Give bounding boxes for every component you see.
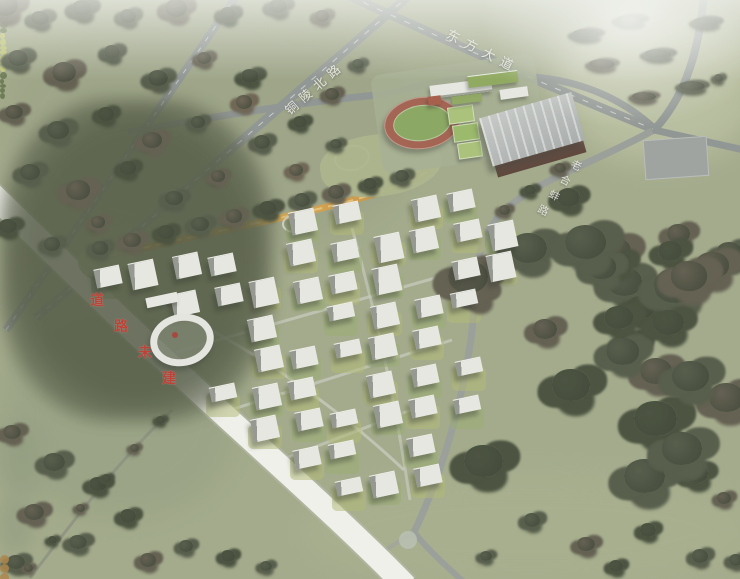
tree-cluster xyxy=(197,52,211,63)
tree-cluster xyxy=(533,319,557,339)
tree-cluster xyxy=(165,0,187,17)
tree-cluster xyxy=(289,164,303,175)
tree-cluster xyxy=(693,17,719,27)
tree-cluster xyxy=(395,170,409,181)
residential-building xyxy=(373,232,404,264)
tree-cluster xyxy=(48,536,57,543)
south-roundabout xyxy=(399,531,417,549)
residential-building xyxy=(172,251,202,279)
tree-cluster xyxy=(220,7,236,20)
tree-cluster xyxy=(640,523,656,536)
tree-cluster xyxy=(142,132,162,148)
site-tree xyxy=(0,28,7,33)
tree-cluster xyxy=(91,216,105,227)
tree-cluster xyxy=(211,170,225,181)
tree-cluster xyxy=(717,492,731,503)
tree-cluster xyxy=(47,121,69,139)
road-label-char: 建 xyxy=(162,368,176,388)
tree-cluster xyxy=(692,549,708,562)
tree-cluster xyxy=(662,432,702,465)
tree-cluster xyxy=(552,369,590,400)
residential-building xyxy=(127,258,158,290)
tree-cluster xyxy=(191,116,205,127)
tree-cluster xyxy=(120,9,136,22)
residential-building xyxy=(293,276,323,304)
tree-cluster xyxy=(624,459,665,493)
tree-cluster xyxy=(352,59,364,69)
tree-cluster xyxy=(679,81,705,91)
road-south-tip xyxy=(414,532,466,579)
tree-cluster xyxy=(130,444,139,451)
site-tree xyxy=(0,33,5,40)
tree-cluster xyxy=(148,70,168,86)
tree-cluster xyxy=(120,509,136,522)
tree-cluster xyxy=(76,504,85,511)
tree-cluster xyxy=(221,550,235,561)
road-label-char: 道 xyxy=(90,290,104,310)
soccer-infield xyxy=(391,101,453,145)
aerial-masterplan-rendering: 铜陵北路 东方大道 老合蚌路 道路未建 xyxy=(0,0,740,579)
tree-cluster xyxy=(328,185,344,198)
tree-cluster xyxy=(524,513,540,526)
tree-cluster xyxy=(260,561,272,571)
school-building-red xyxy=(428,95,442,106)
tree-cluster xyxy=(52,62,76,82)
tree-cluster xyxy=(330,139,342,149)
residential-building xyxy=(250,414,280,442)
tree-cluster xyxy=(140,553,156,566)
tree-cluster xyxy=(604,306,633,330)
tree-cluster xyxy=(226,209,242,222)
sports-court xyxy=(452,122,480,142)
autumn-tree xyxy=(0,573,9,579)
tree-cluster xyxy=(709,383,740,411)
site-tree xyxy=(0,55,6,61)
tree-cluster xyxy=(66,180,90,200)
tree-cluster xyxy=(20,164,40,180)
tree-cluster xyxy=(634,401,677,436)
tree-cluster xyxy=(524,185,536,195)
residential-building xyxy=(248,276,279,308)
tree-cluster xyxy=(589,59,615,69)
road-label-char: 未 xyxy=(138,342,152,362)
commercial-accent xyxy=(172,332,178,338)
tree-cluster xyxy=(158,225,174,238)
tree-cluster xyxy=(294,193,310,206)
tree-cluster xyxy=(632,92,656,101)
tree-cluster xyxy=(102,474,111,481)
tree-cluster xyxy=(254,135,270,148)
parking-plaza xyxy=(643,136,710,180)
tree-cluster xyxy=(464,445,502,477)
tree-cluster xyxy=(72,0,92,16)
sports-court xyxy=(457,140,483,159)
residential-building xyxy=(487,220,518,252)
residential-building xyxy=(371,263,402,295)
tree-cluster xyxy=(179,540,193,551)
tree-cluster xyxy=(24,564,33,571)
tree-cluster xyxy=(587,255,616,279)
tree-cluster xyxy=(499,205,510,214)
tree-cluster xyxy=(236,95,252,108)
tree-cluster xyxy=(609,560,623,571)
tree-cluster xyxy=(156,416,165,423)
tree-cluster xyxy=(92,241,108,254)
tree-cluster xyxy=(363,178,377,189)
tree-cluster xyxy=(671,261,707,291)
tree-cluster xyxy=(480,551,492,561)
tree-cluster xyxy=(325,88,339,99)
tree-cluster xyxy=(44,237,60,250)
site-tree xyxy=(0,15,6,22)
tree-cluster xyxy=(714,74,723,81)
road-label-char: 路 xyxy=(114,316,128,336)
tree-cluster xyxy=(43,453,65,471)
tree-cluster xyxy=(120,161,136,174)
sports-court xyxy=(447,104,475,124)
tree-cluster xyxy=(24,504,44,520)
tree-cluster xyxy=(98,107,114,120)
tree-cluster xyxy=(684,464,708,484)
tree-cluster xyxy=(315,10,329,21)
tree-cluster xyxy=(293,116,307,127)
tree-cluster xyxy=(640,358,672,384)
tree-cluster xyxy=(8,50,28,66)
tree-cluster xyxy=(104,45,120,58)
tree-cluster xyxy=(729,554,740,565)
forest-clearing xyxy=(0,493,32,555)
